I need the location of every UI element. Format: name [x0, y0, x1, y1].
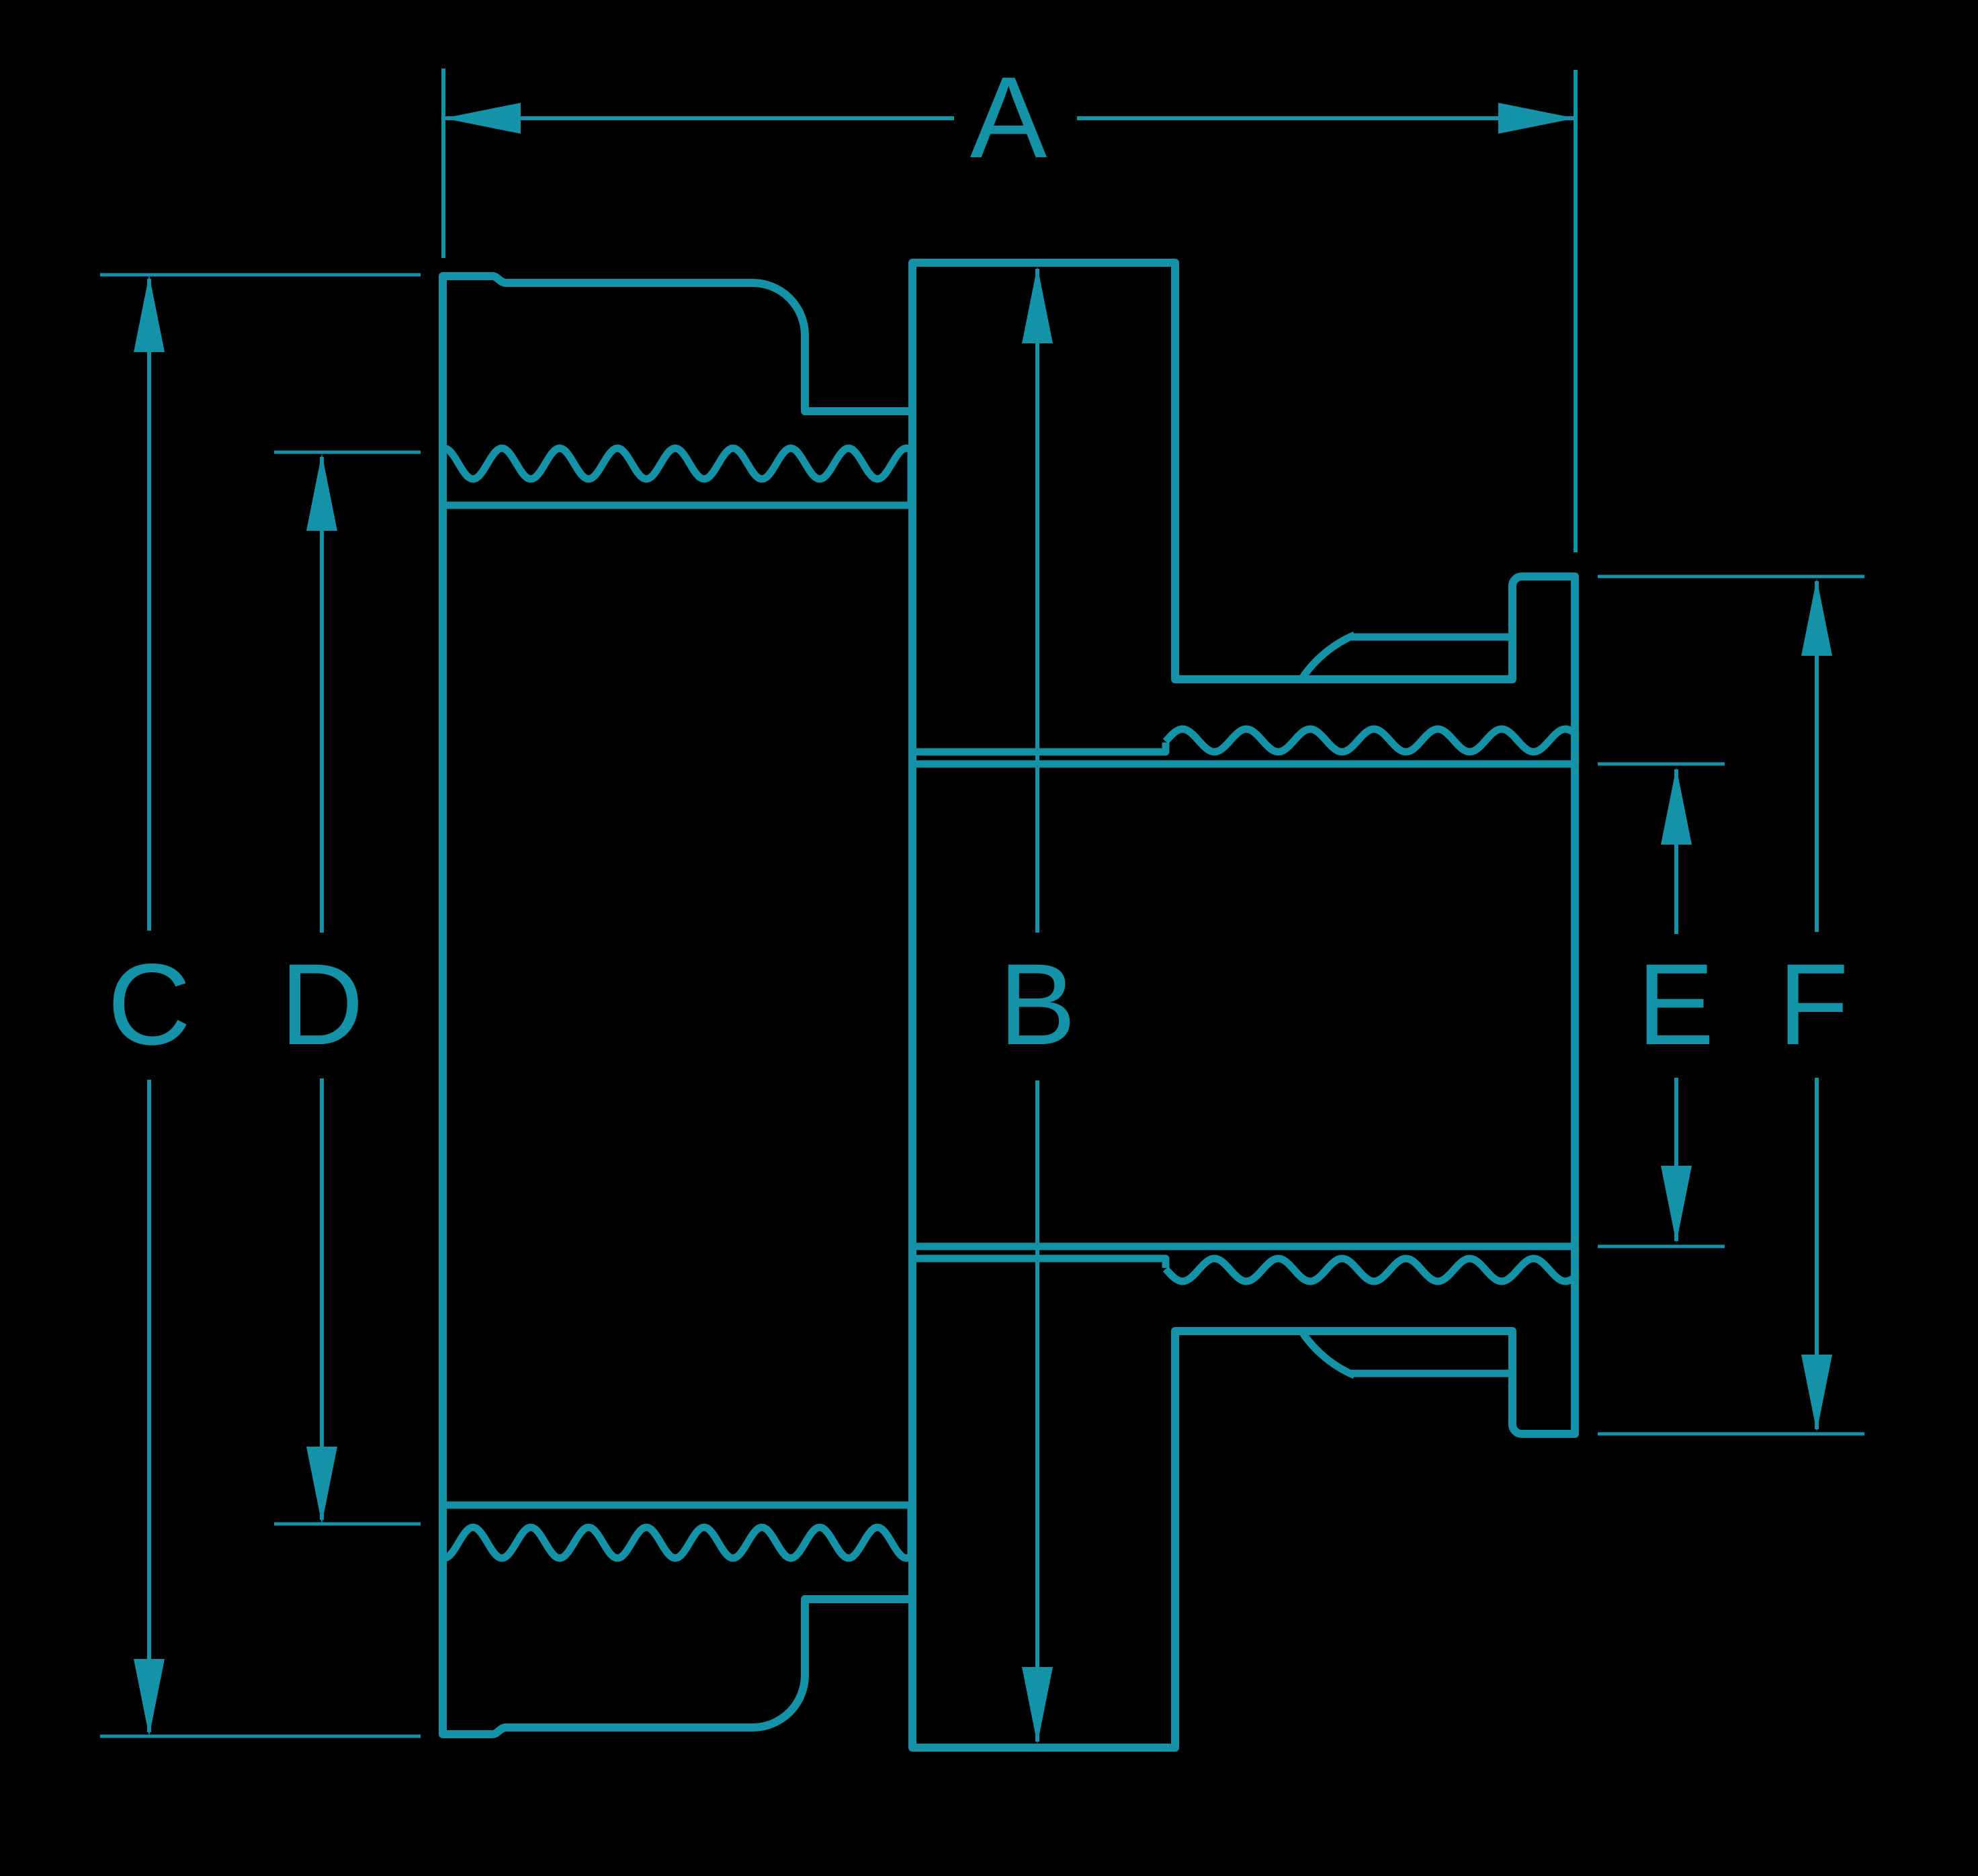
- svg-text:D: D: [280, 940, 363, 1069]
- svg-text:C: C: [107, 940, 191, 1069]
- svg-text:B: B: [999, 940, 1076, 1069]
- svg-text:A: A: [970, 53, 1047, 182]
- svg-text:F: F: [1778, 940, 1848, 1069]
- svg-text:E: E: [1637, 940, 1715, 1069]
